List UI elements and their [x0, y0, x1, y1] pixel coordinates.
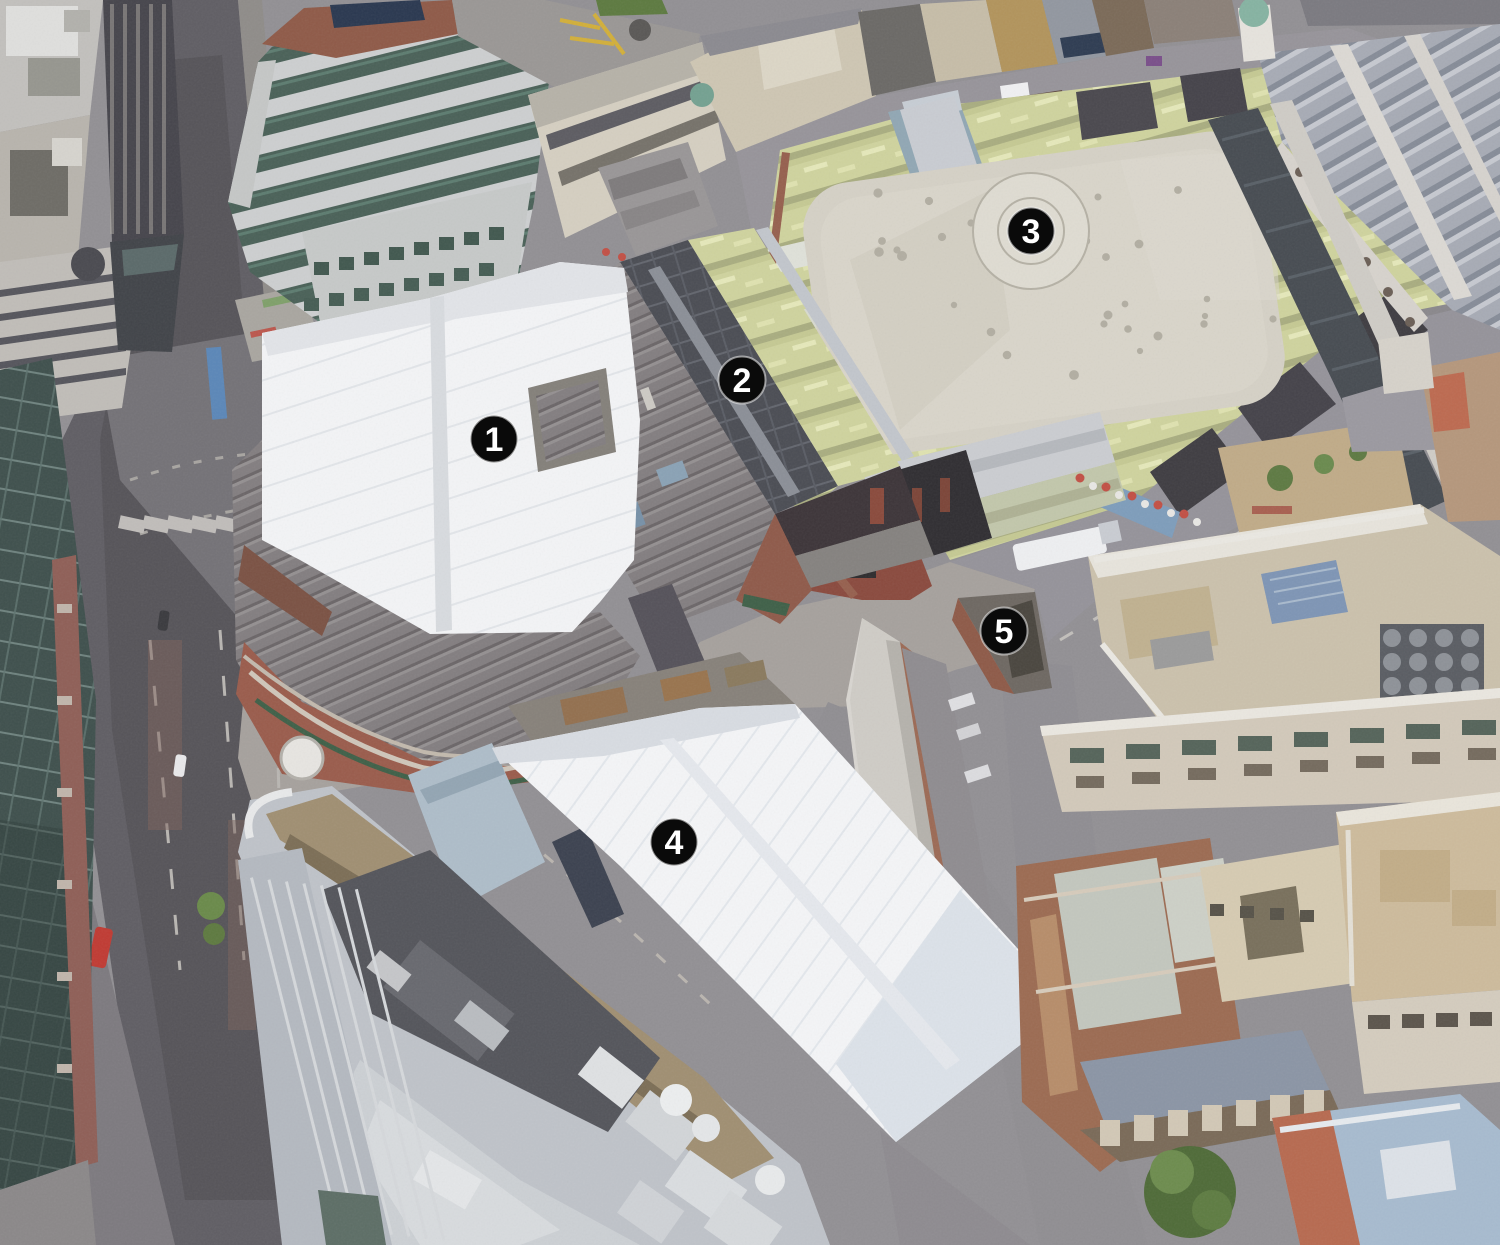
svg-text:1: 1 — [485, 421, 504, 459]
svg-text:5: 5 — [995, 613, 1014, 651]
svg-text:3: 3 — [1022, 213, 1041, 251]
svg-text:2: 2 — [733, 362, 752, 400]
svg-text:4: 4 — [665, 824, 684, 862]
